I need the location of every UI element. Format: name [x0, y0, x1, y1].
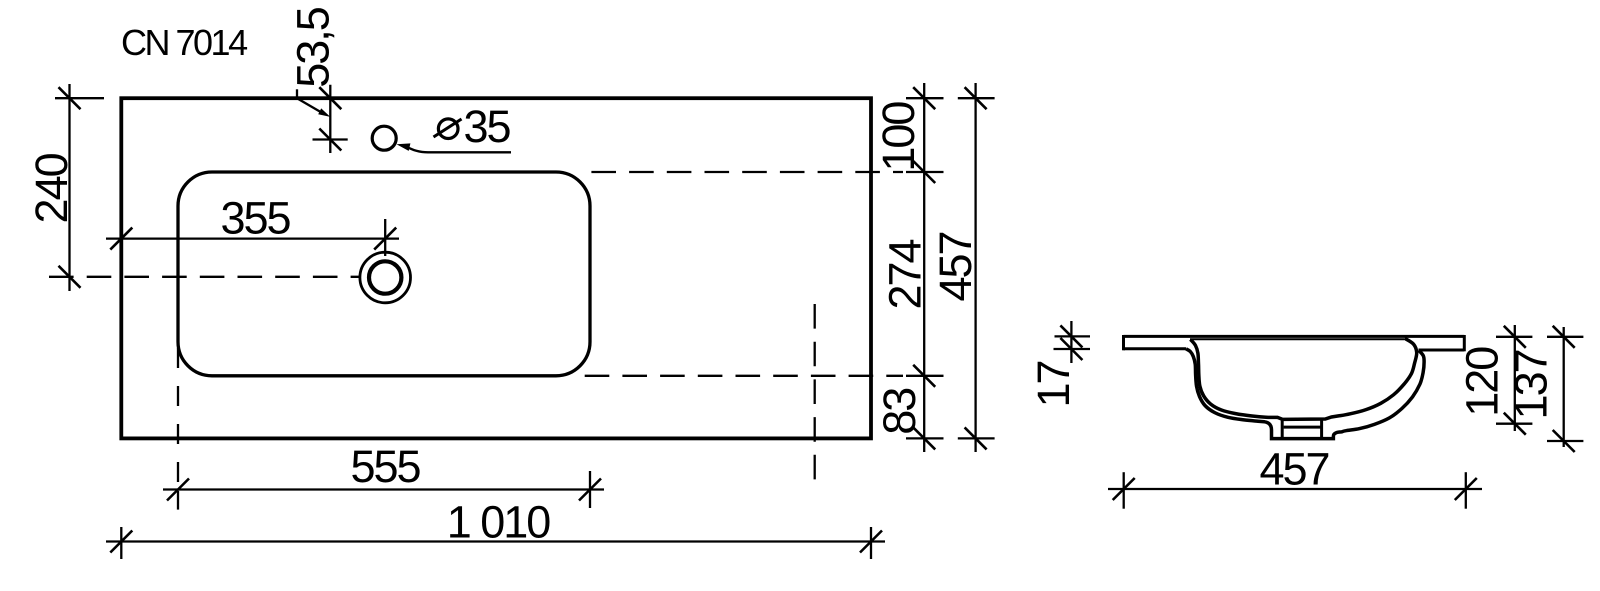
svg-text:100: 100 [873, 102, 924, 172]
svg-text:274: 274 [880, 239, 931, 309]
svg-text:120: 120 [1457, 347, 1508, 417]
svg-text:53,5: 53,5 [288, 7, 339, 88]
svg-text:35: 35 [464, 101, 511, 152]
svg-text:CN 7014: CN 7014 [121, 22, 247, 63]
svg-text:355: 355 [220, 193, 290, 244]
svg-text:555: 555 [350, 441, 420, 492]
svg-text:457: 457 [1259, 444, 1328, 495]
svg-text:83: 83 [874, 388, 925, 435]
svg-text:17: 17 [1028, 361, 1079, 407]
svg-text:457: 457 [930, 232, 981, 301]
svg-text:1 010: 1 010 [447, 497, 551, 548]
svg-text:137: 137 [1506, 350, 1557, 419]
svg-text:240: 240 [26, 153, 77, 223]
